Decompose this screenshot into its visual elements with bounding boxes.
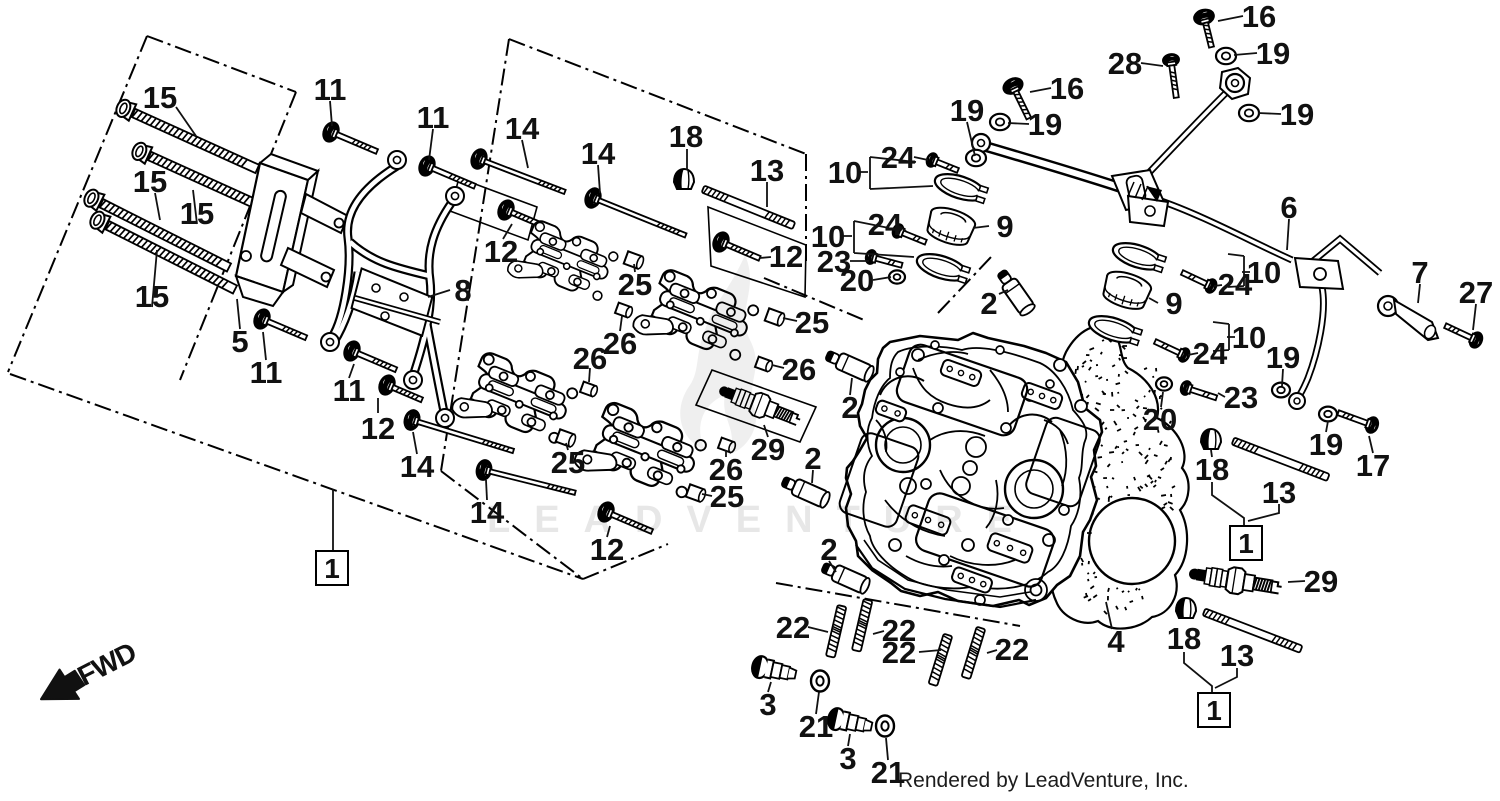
svg-text:18: 18: [669, 119, 703, 154]
svg-text:6: 6: [1280, 190, 1297, 225]
svg-text:2: 2: [820, 532, 837, 567]
svg-text:22: 22: [776, 610, 810, 645]
svg-text:19: 19: [1280, 97, 1314, 132]
svg-text:20: 20: [1143, 402, 1177, 437]
svg-text:17: 17: [1356, 448, 1390, 483]
svg-text:14: 14: [505, 111, 540, 146]
svg-text:12: 12: [769, 239, 803, 274]
svg-text:18: 18: [1167, 621, 1201, 656]
svg-text:19: 19: [1256, 36, 1290, 71]
svg-text:19: 19: [1028, 107, 1062, 142]
svg-text:11: 11: [314, 72, 347, 107]
svg-text:11: 11: [250, 355, 283, 390]
svg-text:12: 12: [484, 234, 518, 269]
svg-text:5: 5: [231, 324, 248, 359]
svg-text:26: 26: [782, 352, 816, 387]
svg-text:15: 15: [133, 164, 167, 199]
svg-text:10: 10: [828, 155, 862, 190]
svg-text:1: 1: [1206, 695, 1222, 726]
svg-text:8: 8: [454, 273, 471, 308]
svg-text:25: 25: [618, 267, 652, 302]
svg-text:11: 11: [417, 100, 450, 135]
svg-text:7: 7: [1411, 255, 1428, 290]
svg-text:1: 1: [324, 553, 340, 584]
svg-text:22: 22: [995, 632, 1029, 667]
svg-text:18: 18: [1195, 452, 1229, 487]
svg-text:25: 25: [795, 305, 829, 340]
svg-text:15: 15: [143, 80, 177, 115]
svg-text:24: 24: [1218, 267, 1253, 302]
svg-text:13: 13: [750, 153, 784, 188]
svg-text:1: 1: [1238, 528, 1254, 559]
svg-text:29: 29: [751, 432, 785, 467]
svg-text:3: 3: [839, 741, 856, 776]
svg-text:Rendered by LeadVenture, Inc.: Rendered by LeadVenture, Inc.: [898, 769, 1189, 792]
svg-text:15: 15: [180, 196, 214, 231]
svg-text:13: 13: [1220, 638, 1254, 673]
svg-text:20: 20: [840, 263, 874, 298]
svg-text:19: 19: [1266, 340, 1300, 375]
svg-text:LEADVENTURE: LEADVENTURE: [487, 499, 1036, 541]
svg-text:24: 24: [868, 207, 903, 242]
svg-text:22: 22: [882, 635, 916, 670]
svg-text:3: 3: [759, 687, 776, 722]
svg-text:15: 15: [135, 279, 169, 314]
svg-text:4: 4: [1107, 624, 1125, 659]
svg-text:9: 9: [996, 209, 1013, 244]
svg-text:27: 27: [1459, 275, 1493, 310]
svg-text:2: 2: [804, 441, 821, 476]
svg-text:13: 13: [1262, 475, 1296, 510]
svg-text:11: 11: [333, 373, 366, 408]
svg-text:14: 14: [470, 495, 505, 530]
svg-text:16: 16: [1050, 71, 1084, 106]
svg-text:12: 12: [590, 532, 624, 567]
svg-text:25: 25: [551, 445, 585, 480]
svg-text:26: 26: [709, 452, 743, 487]
svg-text:2: 2: [980, 286, 997, 321]
svg-text:12: 12: [361, 411, 395, 446]
svg-text:26: 26: [603, 326, 637, 361]
svg-text:14: 14: [581, 136, 616, 171]
svg-text:26: 26: [573, 341, 607, 376]
svg-text:9: 9: [1165, 286, 1182, 321]
svg-text:24: 24: [881, 140, 916, 175]
svg-text:19: 19: [950, 93, 984, 128]
svg-text:21: 21: [799, 709, 833, 744]
svg-text:28: 28: [1108, 46, 1142, 81]
svg-text:21: 21: [871, 755, 905, 790]
svg-text:23: 23: [1224, 380, 1258, 415]
svg-text:19: 19: [1309, 427, 1343, 462]
svg-text:16: 16: [1242, 0, 1276, 34]
svg-text:29: 29: [1304, 564, 1338, 599]
svg-text:24: 24: [1193, 336, 1228, 371]
svg-text:10: 10: [1232, 320, 1266, 355]
svg-text:2: 2: [841, 390, 858, 425]
svg-text:14: 14: [400, 449, 435, 484]
